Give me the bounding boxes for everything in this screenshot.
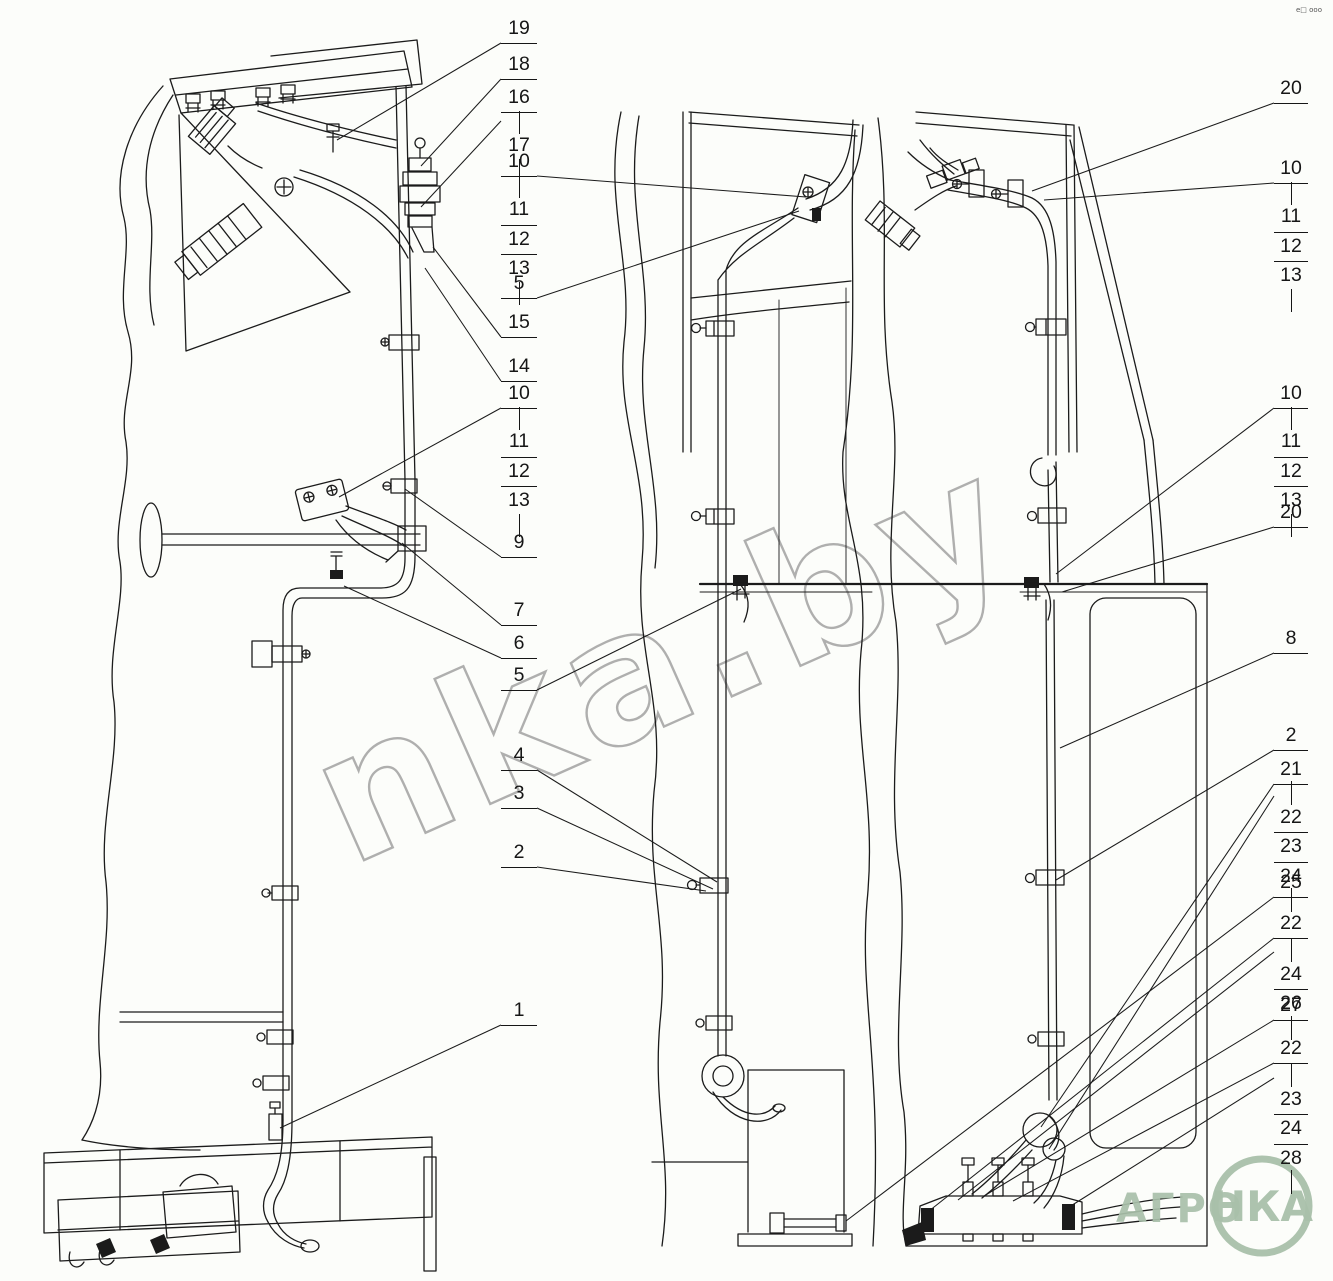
leader-15 [433,247,501,337]
leader-18 [421,79,501,166]
leader-14 [425,268,501,381]
leader-16-17 [421,121,501,207]
callout-box-24-26: 24 26 [1274,941,1308,1038]
leader-10b-left [339,408,501,497]
callout-5a: 5 [501,271,537,299]
callout-15: 15 [501,310,537,338]
callout-1: 1 [501,998,537,1026]
leader-22b [929,938,1274,1211]
harness-tail [264,1102,320,1252]
clamp [252,641,310,667]
sensor-stack [400,138,440,252]
connector-multipin [172,204,261,283]
clamp [1028,508,1067,523]
leader-20b [1062,527,1274,592]
callout-2-left: 2 [501,840,537,868]
callout-14: 14 [501,354,537,382]
callout-22c: 22 [1274,1036,1308,1064]
view-left [44,40,440,1271]
callout-group-10-13-right-a: 10 11 12 13 [1274,156,1308,310]
leader-22c [1013,1063,1274,1201]
callout-group-10-13-b: 10 11 12 13 [501,381,537,535]
bolt-t [327,124,339,152]
leader-10b-right [1056,408,1274,574]
diagram-canvas: nka.by [0,0,1333,1281]
frame-bottom [44,1137,436,1271]
bolt-dark [330,552,343,579]
leader-20a [1032,103,1274,191]
leader-10a-right [1044,183,1274,200]
callout-20a: 20 [1274,76,1308,104]
callout-2-right: 2 [1274,723,1308,751]
watermark: nka.by [283,412,1048,905]
leader-10a-left [537,176,806,197]
callout-22b: 22 [1274,911,1308,939]
callout-20b: 20 [1274,500,1308,528]
callout-18: 18 [501,52,537,80]
leader-8 [1060,653,1274,748]
connector-wiper [188,97,242,154]
harness-loop-end [702,1055,785,1121]
floor-box [652,1070,852,1246]
steering-rod [140,503,426,577]
clamp [1026,319,1067,335]
callout-8: 8 [1274,626,1308,654]
leader-3 [537,808,713,889]
leader-22-23-24 [1049,796,1274,1149]
bracket-bolt [792,175,830,223]
callout-9: 9 [501,530,537,558]
leader-6 [344,586,501,658]
leader-9 [405,489,501,557]
leader-24-26 [958,952,1274,1200]
leader-21 [1041,784,1274,1127]
clamp [257,1030,293,1044]
clamp [381,335,419,350]
callout-5b: 5 [501,663,537,691]
corner-marks: e□ ooo [1296,6,1322,14]
leader-7 [402,543,501,625]
leader-5a [537,211,799,298]
leader-2-right [1056,750,1274,880]
diagram-page: nka.by [0,0,1333,1281]
watermark-text: nka.by [283,412,1048,905]
callout-25: 25 [1274,870,1308,898]
callout-box-23-24-28: 23 24 28 [1274,1066,1308,1193]
clamp [1026,870,1065,885]
view-right [864,112,1207,1246]
callout-3: 3 [501,781,537,809]
clamp [383,479,417,493]
callout-6: 6 [501,631,537,659]
callout-4: 4 [501,743,537,771]
connector-plug [864,201,922,254]
leader-1 [280,1025,501,1128]
callout-19: 19 [501,16,537,44]
callout-7: 7 [501,598,537,626]
clamp [1028,1032,1064,1046]
clamp [692,321,735,336]
switch-block [295,479,349,522]
callout-27: 27 [1274,993,1308,1021]
leader-2-left [537,867,706,891]
screw-cross [275,178,293,196]
